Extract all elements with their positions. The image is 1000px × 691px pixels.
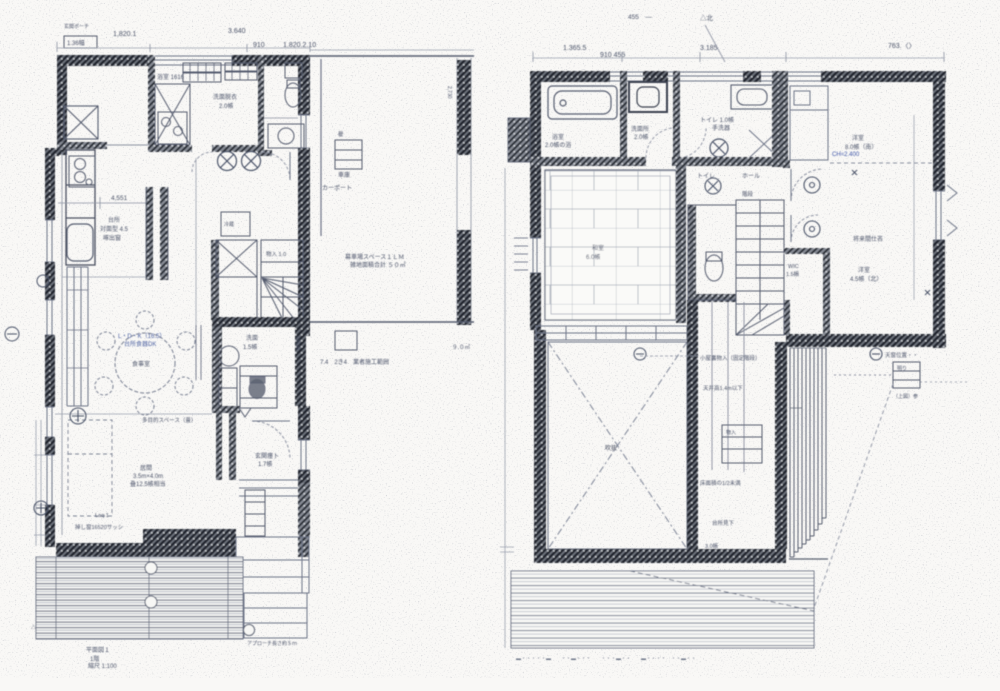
svg-text:2,730: 2,730 <box>446 86 452 99</box>
svg-text:洗面: 洗面 <box>246 334 258 342</box>
svg-text:03606: 03606 <box>294 336 300 350</box>
svg-text:▬・・・・・▬ ・・▬・・・ ・・・▬・・ ▬・・・・: ▬・・・・・▬ ・・▬・・・ ・・・▬・・ ▬・・・・ ・・▬・・ <box>516 656 696 662</box>
svg-text:雑地面積合計 ５０㎡: 雑地面積合計 ５０㎡ <box>350 261 406 269</box>
svg-text:浴室 1616: 浴室 1616 <box>157 73 185 81</box>
svg-text:6.0帳: 6.0帳 <box>586 253 600 261</box>
svg-text:幕車場スペース１ＬＭ: 幕車場スペース１ＬＭ <box>345 253 404 261</box>
svg-text:玄関ポーチ: 玄関ポーチ <box>64 23 89 30</box>
svg-text:多目的スペース（畳）: 多目的スペース（畳） <box>142 416 196 424</box>
svg-text:対面型 4.5: 対面型 4.5 <box>100 225 129 233</box>
svg-text:2.0帳の浴: 2.0帳の浴 <box>545 141 571 149</box>
svg-text:カーポート: カーポート <box>322 184 352 192</box>
svg-text:L・D・K（16.5）: L・D・K（16.5） <box>118 333 165 340</box>
svg-text:明り: 明り <box>897 366 907 372</box>
svg-text:浴室: 浴室 <box>552 133 564 141</box>
svg-text:アプローチ長さ約５ｍ: アプローチ長さ約５ｍ <box>247 640 297 647</box>
svg-text:8.0帳（南）: 8.0帳（南） <box>845 143 877 151</box>
svg-text:トイレ: トイレ <box>697 174 715 180</box>
svg-text:玄関癦卜: 玄関癦卜 <box>255 452 279 460</box>
svg-text:洗面所: 洗面所 <box>631 125 649 133</box>
svg-text:455 —: 455 — <box>628 14 652 21</box>
svg-text:△北: △北 <box>700 13 714 22</box>
svg-text:掉し窗16520サッシ: 掉し窗16520サッシ <box>75 523 123 531</box>
svg-text:（上図）参: （上図）参 <box>893 393 918 400</box>
svg-text:1,820.1: 1,820.1 <box>113 31 136 38</box>
svg-text:床面積の1/2未満: 床面積の1/2未満 <box>700 479 741 487</box>
svg-text:1.5帳: 1.5帳 <box>786 270 800 278</box>
svg-text:洋室: 洋室 <box>852 134 864 142</box>
svg-text:CH=2.400: CH=2.400 <box>832 152 860 158</box>
svg-text:冷蔵: 冷蔵 <box>224 221 234 228</box>
svg-text:7.4 2き4 業者施工範囲: 7.4 2き4 業者施工範囲 <box>320 358 389 366</box>
svg-text:階段: 階段 <box>742 190 754 198</box>
svg-text:将来間仕吝: 将来間仕吝 <box>853 235 883 243</box>
svg-text:食事室: 食事室 <box>132 360 150 368</box>
svg-text:1.7帳: 1.7帳 <box>258 460 272 468</box>
svg-text:縮尺 1:100: 縮尺 1:100 <box>88 662 117 670</box>
svg-text:3.640: 3.640 <box>228 28 246 35</box>
svg-text:天井高1.4m以下: 天井高1.4m以下 <box>703 384 743 392</box>
svg-text:手洗器: 手洗器 <box>712 124 730 132</box>
svg-text:3.0帳: 3.0帳 <box>705 542 719 550</box>
svg-text:居間: 居間 <box>140 465 152 472</box>
svg-text:台所食器DK: 台所食器DK <box>124 340 156 348</box>
svg-text:3.5m×4.0m: 3.5m×4.0m <box>133 474 163 480</box>
svg-text:1階: 1階 <box>90 655 99 663</box>
svg-text:和室: 和室 <box>592 244 604 252</box>
svg-text:物入: 物入 <box>726 429 736 436</box>
svg-text:物入 1.0: 物入 1.0 <box>266 250 286 258</box>
svg-text:トイレ 1.0帳: トイレ 1.0帳 <box>700 116 734 124</box>
svg-text:雤: 雤 <box>338 130 344 138</box>
svg-text:天窗位置・・: 天窗位置・・ <box>885 351 918 359</box>
svg-text:Laq 1: Laq 1 <box>95 513 109 519</box>
svg-text:1.365.5: 1.365.5 <box>563 45 586 52</box>
svg-text:叠12.5帳相当: 叠12.5帳相当 <box>130 480 166 488</box>
svg-text:台所: 台所 <box>108 216 120 224</box>
svg-text:2.0帳: 2.0帳 <box>219 102 233 110</box>
svg-text:2.0帳: 2.0帳 <box>634 133 648 141</box>
svg-text:平面図１: 平面図１ <box>86 647 110 654</box>
svg-text:ホール: ホール <box>742 173 760 180</box>
svg-text:洋室: 洋室 <box>858 266 870 274</box>
svg-text:９.０㎡: ９.０㎡ <box>452 343 471 351</box>
svg-text:吹抜: 吹抜 <box>605 444 617 452</box>
svg-text:1.36幅: 1.36幅 <box>67 39 85 47</box>
svg-text:1.5帳: 1.5帳 <box>243 343 257 351</box>
svg-text:啄出窗: 啄出窗 <box>103 234 121 242</box>
svg-text:3.185: 3.185 <box>700 45 718 52</box>
svg-text:4.5帳（北）: 4.5帳（北） <box>850 275 882 283</box>
svg-text:車庫: 車庫 <box>338 171 350 179</box>
svg-text:小屋裏物入（固定階段）: 小屋裏物入（固定階段） <box>700 354 761 362</box>
svg-text:台所見下: 台所見下 <box>712 519 735 527</box>
svg-text:WIC: WIC <box>788 264 799 270</box>
svg-text:洗面脱衣: 洗面脱衣 <box>213 93 237 101</box>
svg-text:4,551: 4,551 <box>111 195 128 202</box>
svg-text:763.〈〉: 763.〈〉 <box>888 42 916 50</box>
